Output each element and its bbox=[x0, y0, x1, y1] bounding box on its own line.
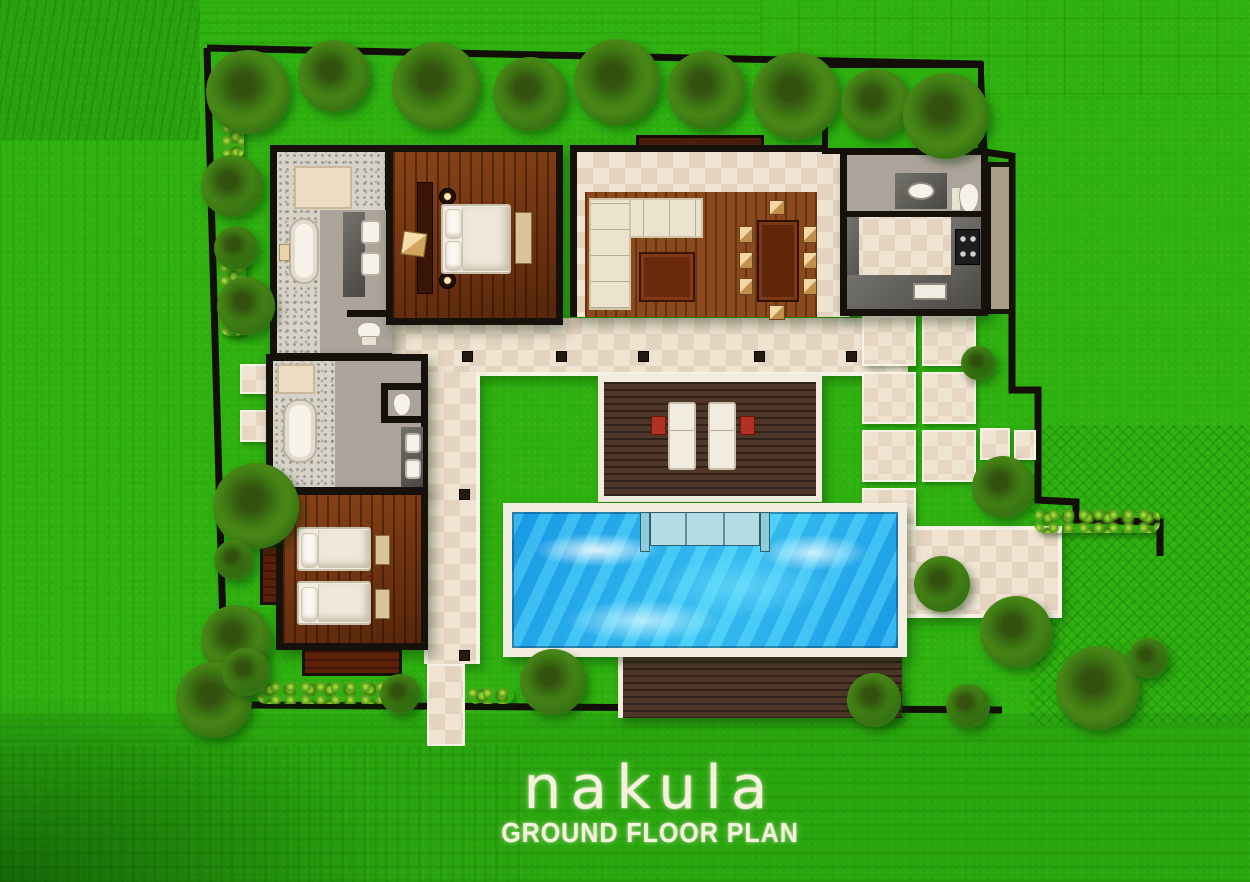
twin-bed bbox=[297, 527, 371, 571]
column bbox=[556, 351, 567, 362]
toilet-tank bbox=[361, 336, 377, 346]
pool-water bbox=[512, 512, 898, 648]
coffee-table bbox=[639, 252, 695, 302]
column bbox=[462, 351, 473, 362]
sun-lounger bbox=[708, 402, 736, 470]
duvet bbox=[318, 530, 370, 568]
property-name: nakula bbox=[400, 758, 900, 818]
vanity-counter bbox=[401, 427, 423, 487]
stepping-stone bbox=[922, 372, 976, 424]
field-texture-bottom bbox=[0, 714, 1250, 882]
powder-vanity bbox=[895, 173, 947, 209]
tree bbox=[520, 649, 586, 715]
dining-chair bbox=[803, 226, 817, 243]
tree bbox=[214, 226, 258, 270]
guest-bathroom bbox=[266, 354, 428, 494]
stepping-stone bbox=[240, 364, 268, 394]
master-bedroom bbox=[386, 145, 563, 325]
floor-cushion bbox=[400, 230, 427, 257]
swimming-pool bbox=[503, 503, 907, 657]
service-court bbox=[986, 162, 1014, 314]
tree bbox=[214, 540, 254, 580]
tree bbox=[574, 39, 660, 125]
bed-bench bbox=[375, 589, 390, 619]
bed-bench bbox=[515, 212, 532, 264]
field-texture-bottom-rows bbox=[0, 745, 520, 882]
hedge-row bbox=[222, 96, 244, 160]
tree bbox=[176, 662, 252, 738]
bath-caddy bbox=[279, 244, 290, 261]
field-texture-bottom-right bbox=[1030, 425, 1250, 725]
sun-deck bbox=[598, 376, 822, 502]
wc-nook-wall bbox=[381, 383, 388, 423]
pebble-floor bbox=[273, 361, 335, 487]
dining-chair bbox=[769, 305, 785, 320]
tree bbox=[946, 684, 990, 728]
toilet bbox=[393, 393, 411, 416]
twin-bedroom bbox=[276, 488, 428, 650]
tree bbox=[1056, 646, 1140, 730]
dining-chair bbox=[769, 200, 785, 215]
bath-mat bbox=[277, 364, 315, 394]
pool-steps bbox=[640, 512, 770, 552]
plan-title-block: nakula GROUND FLOOR PLAN bbox=[400, 758, 900, 849]
column bbox=[459, 650, 470, 661]
boundary-wall bbox=[0, 0, 1250, 882]
living-platform bbox=[585, 192, 817, 317]
vanity-sink bbox=[405, 459, 421, 479]
kitchen-counter-bottom bbox=[847, 275, 981, 309]
toilet bbox=[357, 322, 381, 340]
vanity-sink bbox=[361, 220, 381, 244]
vanity-sink bbox=[405, 433, 421, 453]
gate-wall-stub-south bbox=[1002, 594, 1034, 611]
vanity-sink bbox=[361, 252, 381, 276]
deck-side-table bbox=[651, 416, 666, 435]
stepping-stone bbox=[862, 488, 916, 526]
field-texture-left bbox=[0, 140, 200, 715]
bedside-lamp bbox=[439, 272, 456, 289]
deck-side-table bbox=[740, 416, 755, 435]
gate-wall-stub-north bbox=[1002, 542, 1034, 557]
bedside-lamp bbox=[439, 188, 456, 205]
tree bbox=[667, 51, 745, 129]
tree bbox=[222, 648, 270, 696]
field-shadow-bottom-left bbox=[0, 690, 420, 882]
tree bbox=[201, 155, 263, 217]
stepping-stone bbox=[240, 410, 268, 442]
kitchen-counter-right bbox=[951, 217, 981, 309]
sofa-chaise bbox=[589, 198, 631, 310]
tree bbox=[914, 556, 970, 612]
bathtub bbox=[283, 399, 317, 463]
hedge-row bbox=[468, 687, 514, 704]
powder-basin bbox=[907, 182, 935, 200]
wc-nook-wall bbox=[381, 416, 423, 423]
veranda-walkway bbox=[390, 318, 908, 376]
bed-pillow bbox=[301, 587, 318, 622]
tree bbox=[493, 57, 567, 131]
bed-pillow bbox=[445, 241, 462, 271]
corridor-walkway bbox=[424, 372, 480, 664]
column bbox=[754, 351, 765, 362]
dining-chair bbox=[803, 278, 817, 295]
hedge-row bbox=[1034, 509, 1160, 533]
field-texture-top-left bbox=[0, 0, 200, 140]
tree bbox=[980, 596, 1052, 668]
dining-chair bbox=[739, 278, 753, 295]
powder-divider-wall bbox=[847, 211, 981, 217]
sofa bbox=[589, 198, 703, 238]
bathroom-floor bbox=[320, 210, 392, 353]
bedroom-terrace-step bbox=[302, 648, 402, 676]
powder-room-floor bbox=[847, 155, 981, 211]
dining-chair bbox=[739, 252, 753, 269]
bathtub bbox=[289, 218, 319, 284]
tree bbox=[380, 674, 420, 714]
double-bed bbox=[441, 204, 511, 274]
column bbox=[638, 351, 649, 362]
wc-nook-wall bbox=[381, 383, 423, 390]
sun-lounger bbox=[668, 402, 696, 470]
toilet-tank bbox=[951, 187, 961, 211]
bath-mat bbox=[294, 166, 352, 209]
tree bbox=[217, 277, 275, 335]
dining-chair bbox=[739, 226, 753, 243]
bed-pillow bbox=[445, 209, 462, 239]
stepping-stone bbox=[862, 430, 916, 482]
bed-bench bbox=[375, 535, 390, 565]
stepping-stone bbox=[862, 316, 916, 366]
tree-courtyard bbox=[822, 62, 984, 154]
tree bbox=[972, 456, 1034, 518]
vanity-counter bbox=[343, 212, 365, 297]
tree bbox=[201, 605, 271, 675]
headboard bbox=[417, 182, 433, 294]
master-bathroom bbox=[270, 145, 392, 360]
kitchen-sink bbox=[913, 283, 947, 300]
toilet bbox=[959, 183, 979, 213]
dining-table bbox=[757, 220, 799, 302]
living-dining-pavilion bbox=[570, 145, 850, 317]
tree bbox=[206, 50, 290, 134]
column bbox=[846, 351, 857, 362]
pool-side-deck bbox=[618, 654, 902, 718]
kitchen-block bbox=[840, 148, 988, 316]
tree bbox=[847, 673, 901, 727]
stepping-stone bbox=[922, 316, 976, 366]
twin-bed bbox=[297, 581, 371, 625]
tree bbox=[298, 40, 370, 112]
dining-chair bbox=[803, 252, 817, 269]
field-texture-top bbox=[200, 0, 760, 44]
kitchen-counter-left bbox=[847, 217, 859, 309]
hedge-row bbox=[256, 681, 390, 704]
tree bbox=[1128, 638, 1168, 678]
duvet bbox=[318, 584, 370, 622]
stepping-stone bbox=[980, 428, 1010, 460]
stepping-stone bbox=[922, 430, 976, 482]
garden-path bbox=[427, 664, 465, 746]
floor-plan-scene: nakula GROUND FLOOR PLAN bbox=[0, 0, 1250, 882]
stove bbox=[955, 229, 980, 265]
stepping-stone bbox=[862, 372, 916, 424]
stepping-stone bbox=[1014, 430, 1036, 460]
plan-subtitle: GROUND FLOOR PLAN bbox=[418, 818, 883, 850]
tree bbox=[392, 42, 480, 130]
entrance-terrace bbox=[896, 526, 1062, 618]
column bbox=[459, 489, 470, 500]
tree bbox=[961, 346, 995, 380]
hedge-row bbox=[220, 236, 246, 336]
bed-pillow bbox=[301, 533, 318, 568]
duvet bbox=[462, 207, 509, 271]
